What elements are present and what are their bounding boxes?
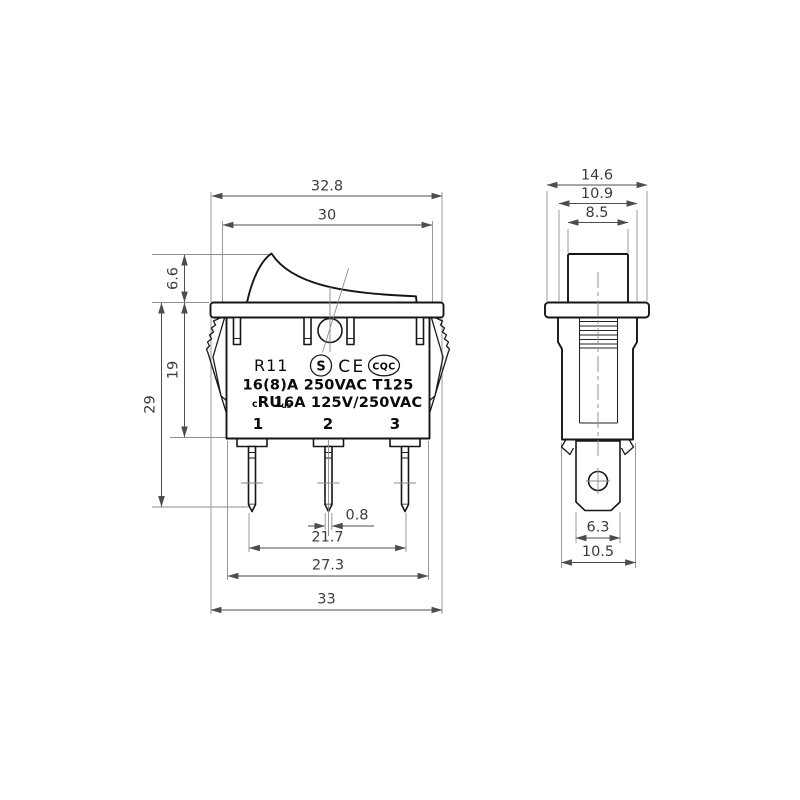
dim-rocker-height: 6.6 (166, 267, 182, 290)
dim-body-depth: 10.9 (581, 186, 613, 202)
rocker-actuator (247, 254, 417, 303)
s-mark-letter: S (316, 360, 325, 375)
ce-mark: CE (338, 357, 366, 377)
side-switch-body (545, 254, 649, 511)
dim-flange-width: 33 (317, 592, 335, 608)
terminal-number-3: 3 (390, 415, 400, 433)
technical-drawing-canvas: R11 S CE CQC 16(8)A 250VAC T125 cRUus 16… (0, 0, 800, 800)
dim-housing-depth: 10.5 (582, 544, 614, 560)
terminal-number-2: 2 (323, 415, 333, 433)
front-view: R11 S CE CQC 16(8)A 250VAC T125 cRUus 16… (143, 179, 450, 615)
model-label: R11 (254, 356, 288, 375)
dim-rocker-opening: 30 (318, 208, 336, 224)
side-view: 14.6 10.9 8.5 6.3 10.5 (545, 168, 649, 569)
left-snap-wing (207, 318, 229, 420)
side-flange (545, 303, 649, 318)
right-snap-wing (428, 318, 450, 420)
dim-rocker-depth: 8.5 (585, 205, 608, 221)
dim-pin-thickness: 0.8 (345, 508, 368, 524)
terminal-number-1: 1 (253, 415, 263, 433)
side-housing (558, 318, 637, 440)
rocker-switch-drawing: R11 S CE CQC 16(8)A 250VAC T125 cRUus 16… (0, 0, 800, 800)
front-flange (211, 303, 444, 318)
dim-top-overall: 32.8 (311, 179, 343, 195)
rating-primary: 16(8)A 250VAC T125 (243, 378, 414, 394)
terminal-pin-1 (237, 439, 267, 512)
dim-overall-height: 29 (143, 395, 159, 413)
terminal-pin-3 (390, 439, 420, 512)
dim-body-height: 19 (166, 361, 182, 379)
dim-body-width: 27.3 (312, 558, 344, 574)
cqc-mark-text: CQC (372, 362, 395, 373)
rating-secondary: 16A 125V/250VAC (274, 395, 423, 411)
dim-pin-pitch: 21.7 (311, 530, 343, 546)
dim-terminal-blade-width: 6.3 (586, 520, 609, 536)
dim-flange-depth: 14.6 (581, 168, 613, 184)
